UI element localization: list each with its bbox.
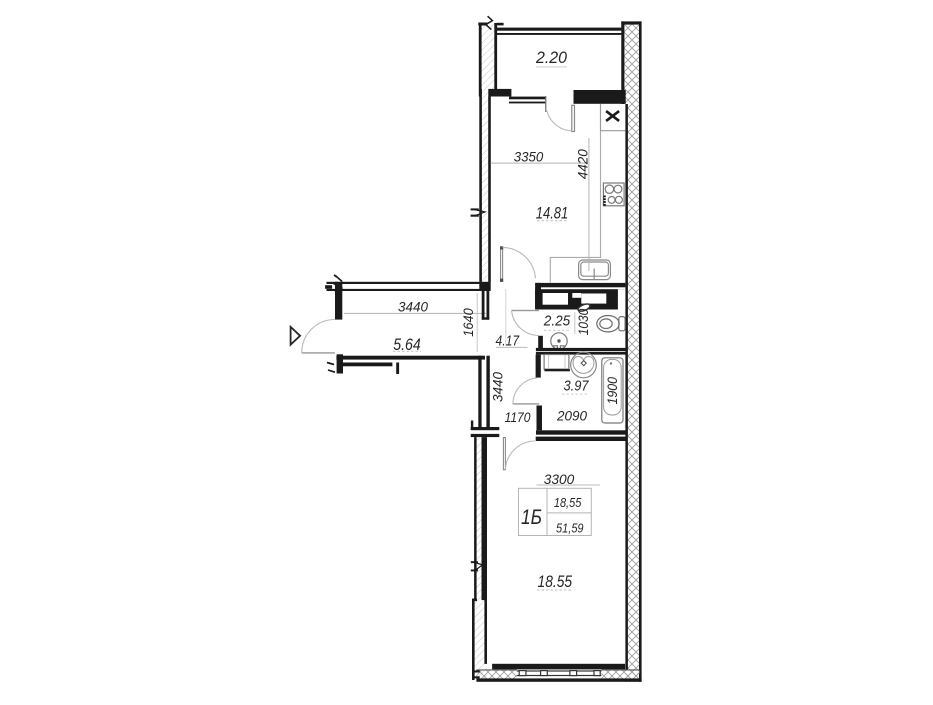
svg-text:3440: 3440: [398, 298, 428, 314]
svg-text:4420: 4420: [574, 149, 590, 179]
svg-text:14.81: 14.81: [536, 204, 569, 222]
svg-text:3.97: 3.97: [564, 379, 590, 395]
svg-text:3440: 3440: [490, 372, 506, 402]
svg-text:18.55: 18.55: [538, 573, 573, 591]
svg-text:1170: 1170: [505, 409, 531, 425]
svg-text:1900: 1900: [604, 377, 620, 405]
svg-text:3300: 3300: [544, 471, 575, 487]
svg-text:3350: 3350: [514, 149, 544, 165]
svg-text:1Б: 1Б: [521, 506, 542, 529]
svg-text:1030: 1030: [575, 309, 591, 336]
svg-text:51,59: 51,59: [556, 520, 584, 535]
svg-text:2.20: 2.20: [535, 49, 568, 67]
svg-text:18,55: 18,55: [554, 495, 582, 510]
svg-text:1640: 1640: [460, 308, 476, 337]
svg-text:2.25: 2.25: [543, 314, 571, 330]
svg-text:2090: 2090: [556, 408, 587, 424]
